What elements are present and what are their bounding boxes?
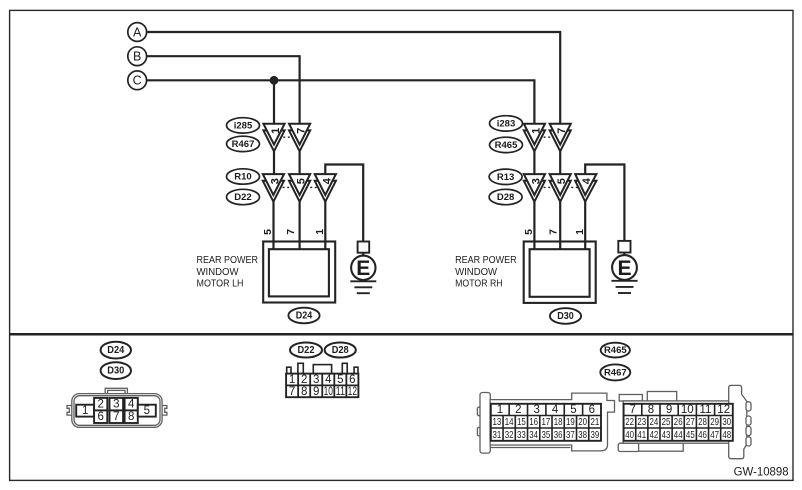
svg-text:38: 38	[578, 429, 587, 441]
svg-text:MOTOR LH: MOTOR LH	[197, 279, 244, 290]
svg-text:16: 16	[529, 416, 538, 428]
svg-text:D22: D22	[298, 345, 315, 356]
svg-text:11: 11	[700, 404, 712, 416]
svg-text:32: 32	[505, 429, 514, 441]
svg-text:30: 30	[722, 416, 731, 428]
svg-text:7: 7	[285, 229, 297, 235]
svg-text:7: 7	[556, 128, 568, 134]
svg-text:1: 1	[289, 374, 295, 386]
svg-text:3: 3	[269, 178, 281, 184]
svg-text:31: 31	[493, 429, 502, 441]
svg-text:1: 1	[497, 404, 503, 416]
svg-text:28: 28	[698, 416, 707, 428]
svg-text:4: 4	[581, 177, 593, 184]
svg-text:10: 10	[681, 404, 694, 416]
svg-text:21: 21	[590, 416, 599, 428]
svg-text:42: 42	[650, 429, 659, 441]
svg-text:WINDOW: WINDOW	[197, 267, 240, 278]
svg-text:5: 5	[570, 404, 576, 416]
svg-text:R465: R465	[604, 345, 627, 356]
svg-text:D24: D24	[296, 311, 313, 322]
svg-text:25: 25	[662, 416, 671, 428]
svg-text:47: 47	[710, 429, 719, 441]
svg-text:10: 10	[324, 386, 333, 398]
svg-text:D30: D30	[107, 366, 124, 377]
svg-text:E: E	[356, 257, 370, 280]
svg-text:12: 12	[717, 404, 730, 416]
svg-text:3: 3	[530, 178, 542, 184]
svg-text:5: 5	[556, 178, 568, 184]
svg-text:2: 2	[97, 399, 103, 411]
svg-text:WINDOW: WINDOW	[455, 267, 498, 278]
svg-text:R465: R465	[495, 140, 518, 151]
svg-text:8: 8	[128, 411, 134, 423]
svg-text:4: 4	[321, 177, 333, 184]
svg-text:23: 23	[637, 416, 646, 428]
svg-text:1: 1	[270, 128, 282, 134]
svg-text:18: 18	[554, 416, 563, 428]
svg-text:24: 24	[650, 416, 659, 428]
svg-text:9: 9	[313, 386, 319, 398]
svg-text:15: 15	[517, 416, 526, 428]
svg-text:8: 8	[301, 386, 307, 398]
svg-text:B: B	[133, 50, 141, 64]
svg-text:1: 1	[314, 229, 326, 235]
svg-text:1: 1	[574, 229, 586, 235]
svg-text:i283: i283	[497, 118, 516, 129]
svg-text:MOTOR RH: MOTOR RH	[455, 279, 503, 290]
svg-text:37: 37	[566, 429, 575, 441]
svg-text:5: 5	[296, 178, 308, 184]
svg-text:7: 7	[629, 404, 635, 416]
svg-text:41: 41	[637, 429, 646, 441]
svg-text:D24: D24	[107, 345, 124, 356]
svg-text:36: 36	[554, 429, 563, 441]
svg-text:2: 2	[515, 404, 521, 416]
svg-text:45: 45	[686, 429, 695, 441]
svg-text:27: 27	[686, 416, 695, 428]
svg-text:7: 7	[113, 411, 119, 423]
svg-text:4: 4	[325, 374, 332, 386]
svg-text:5: 5	[144, 405, 150, 417]
svg-text:E: E	[617, 257, 631, 280]
svg-text:13: 13	[493, 416, 502, 428]
svg-text:34: 34	[529, 429, 538, 441]
svg-text:i285: i285	[234, 120, 253, 131]
svg-text:REAR POWER: REAR POWER	[197, 255, 259, 266]
svg-text:5: 5	[523, 229, 535, 235]
svg-text:REAR POWER: REAR POWER	[455, 255, 516, 266]
svg-text:D28: D28	[332, 345, 349, 356]
svg-text:7: 7	[548, 229, 560, 235]
svg-text:17: 17	[542, 416, 551, 428]
svg-text:5: 5	[262, 229, 274, 235]
svg-text:7: 7	[289, 386, 295, 398]
svg-text:4: 4	[128, 399, 135, 411]
svg-text:14: 14	[505, 416, 514, 428]
svg-text:20: 20	[578, 416, 587, 428]
svg-text:C: C	[133, 74, 142, 88]
svg-text:22: 22	[625, 416, 634, 428]
svg-text:44: 44	[674, 429, 683, 441]
svg-text:6: 6	[349, 374, 355, 386]
svg-text:48: 48	[722, 429, 731, 441]
svg-text:6: 6	[589, 404, 595, 416]
svg-text:26: 26	[674, 416, 683, 428]
svg-text:6: 6	[97, 411, 103, 423]
svg-text:5: 5	[337, 374, 343, 386]
svg-text:46: 46	[698, 429, 707, 441]
svg-text:A: A	[133, 25, 142, 39]
svg-text:GW-10898: GW-10898	[734, 467, 789, 479]
svg-text:7: 7	[296, 128, 308, 134]
svg-text:12: 12	[348, 386, 357, 398]
svg-text:D28: D28	[497, 192, 514, 203]
svg-text:3: 3	[534, 404, 540, 416]
svg-text:R467: R467	[604, 367, 627, 378]
svg-text:R467: R467	[232, 139, 255, 150]
svg-text:R10: R10	[234, 172, 251, 183]
svg-text:1: 1	[82, 405, 88, 417]
svg-text:29: 29	[710, 416, 719, 428]
svg-text:3: 3	[113, 399, 119, 411]
svg-text:R13: R13	[497, 172, 514, 183]
svg-text:33: 33	[517, 429, 526, 441]
svg-text:9: 9	[666, 404, 672, 416]
svg-text:39: 39	[590, 429, 599, 441]
svg-text:11: 11	[336, 386, 345, 398]
svg-text:19: 19	[566, 416, 575, 428]
svg-text:1: 1	[530, 128, 542, 134]
svg-text:8: 8	[648, 404, 654, 416]
svg-text:40: 40	[625, 429, 634, 441]
svg-text:35: 35	[542, 429, 551, 441]
svg-text:3: 3	[313, 374, 319, 386]
svg-text:D30: D30	[557, 311, 574, 322]
svg-text:43: 43	[662, 429, 671, 441]
svg-text:2: 2	[301, 374, 307, 386]
svg-text:4: 4	[552, 404, 559, 416]
svg-text:D22: D22	[234, 192, 251, 203]
